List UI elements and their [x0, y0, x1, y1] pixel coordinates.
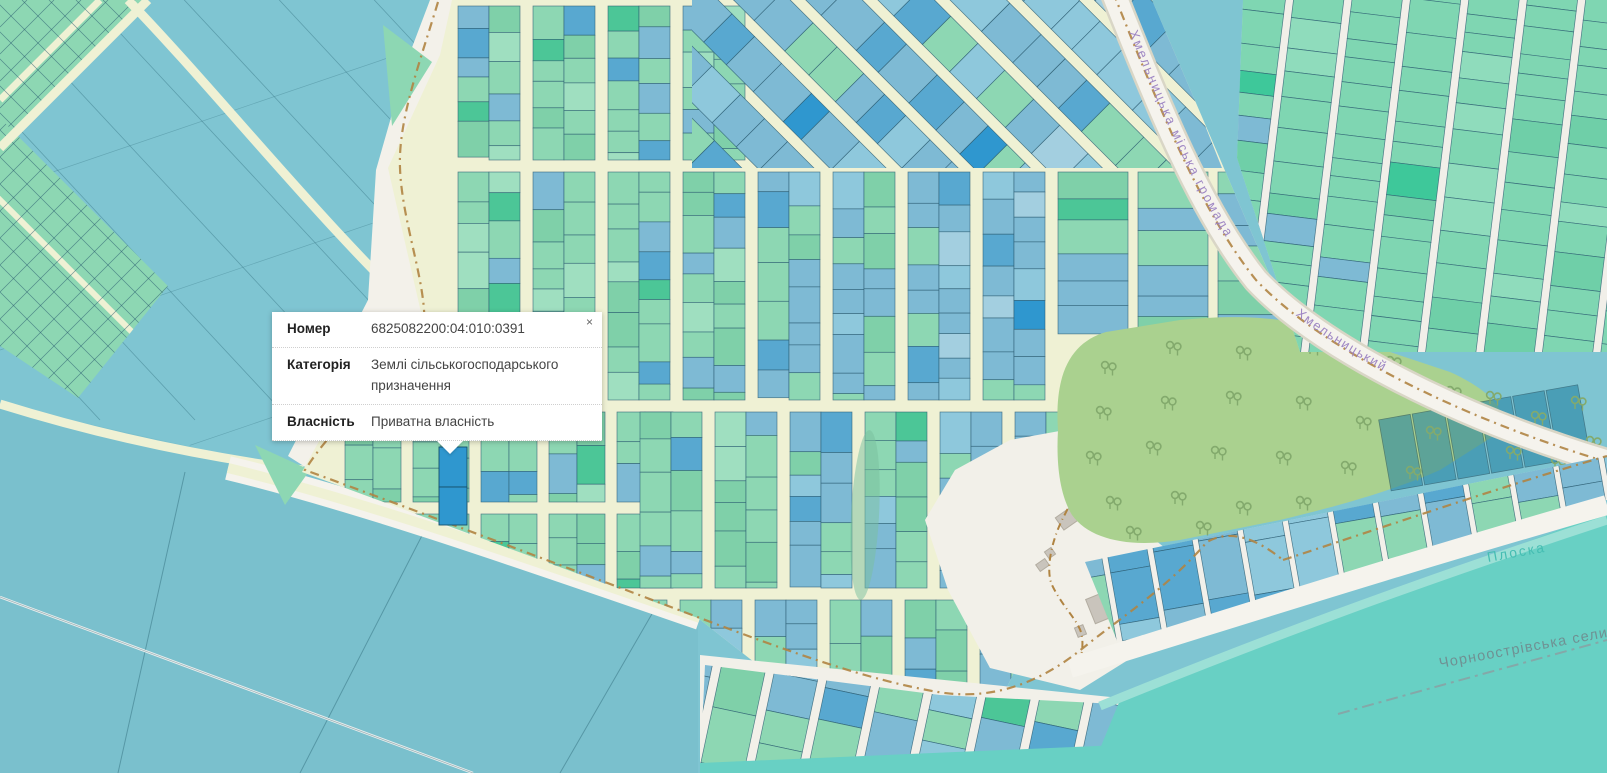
parcel[interactable]	[1138, 231, 1208, 266]
parcel[interactable]	[373, 448, 401, 489]
parcel[interactable]	[533, 172, 564, 210]
parcel[interactable]	[1505, 152, 1558, 188]
parcel[interactable]	[714, 328, 745, 365]
parcel[interactable]	[1551, 252, 1605, 292]
parcel[interactable]	[715, 502, 746, 531]
parcel[interactable]	[939, 358, 970, 378]
parcel[interactable]	[608, 153, 639, 160]
parcel[interactable]	[458, 58, 489, 77]
parcel[interactable]	[714, 217, 745, 248]
parcel[interactable]	[489, 146, 520, 160]
parcel[interactable]	[608, 58, 639, 81]
parcel[interactable]	[746, 510, 777, 542]
parcel[interactable]	[896, 462, 927, 497]
parcel[interactable]	[789, 323, 820, 345]
parcel[interactable]	[833, 314, 864, 335]
parcel[interactable]	[1437, 230, 1491, 269]
parcel[interactable]	[714, 281, 745, 304]
parcel[interactable]	[608, 172, 639, 204]
parcel[interactable]	[758, 301, 789, 340]
parcel[interactable]	[481, 472, 509, 503]
parcel[interactable]	[509, 495, 537, 503]
parcel[interactable]	[746, 477, 777, 510]
parcel[interactable]	[639, 384, 670, 400]
parcel[interactable]	[1014, 301, 1045, 330]
parcel[interactable]	[971, 412, 1002, 446]
parcel-info-popup: × Номер 6825082200:04:010:0391 Категорія…	[272, 312, 602, 441]
parcel[interactable]	[608, 347, 639, 372]
parcel[interactable]	[509, 471, 537, 494]
parcel[interactable]	[639, 141, 670, 160]
parcel[interactable]	[639, 324, 670, 362]
parcel[interactable]	[608, 262, 639, 282]
popup-pointer	[437, 441, 463, 454]
parcel[interactable]	[1138, 266, 1208, 296]
parcel[interactable]	[564, 110, 595, 134]
parcel[interactable]	[789, 260, 820, 287]
parcel[interactable]	[564, 172, 595, 202]
parcel[interactable]	[640, 439, 671, 472]
parcel[interactable]	[683, 215, 714, 253]
close-icon[interactable]: ×	[586, 316, 593, 328]
parcel[interactable]	[1395, 90, 1448, 127]
parcel[interactable]	[639, 192, 670, 222]
cadastral-map[interactable]: Хмельницька міська громада Хмельницький …	[0, 0, 1607, 773]
parcel[interactable]	[458, 252, 489, 289]
parcel[interactable]	[640, 472, 671, 512]
parcel[interactable]	[533, 210, 564, 242]
parcel[interactable]	[896, 412, 927, 441]
parcel[interactable]	[683, 302, 714, 332]
parcel[interactable]	[413, 468, 441, 497]
parcel[interactable]	[577, 543, 605, 564]
parcel[interactable]	[1058, 281, 1128, 305]
parcel[interactable]	[640, 512, 671, 546]
parcel[interactable]	[639, 6, 670, 27]
parcel[interactable]	[714, 366, 745, 393]
parcel[interactable]	[830, 600, 861, 643]
parcel[interactable]	[1494, 240, 1548, 279]
parcel[interactable]	[983, 266, 1014, 296]
parcel[interactable]	[746, 582, 777, 588]
parcel[interactable]	[939, 334, 970, 359]
parcel[interactable]	[821, 412, 852, 453]
parcel[interactable]	[608, 131, 639, 152]
parcel[interactable]	[790, 496, 821, 521]
parcel[interactable]	[821, 453, 852, 484]
parcel[interactable]	[481, 514, 509, 542]
field-label: Категорія	[287, 355, 371, 396]
parcel[interactable]	[864, 172, 895, 207]
parcel[interactable]	[577, 484, 605, 502]
parcel[interactable]	[714, 304, 745, 328]
parcel[interactable]	[564, 58, 595, 83]
selected-parcel[interactable]	[439, 447, 467, 525]
parcel[interactable]	[640, 546, 671, 576]
parcel[interactable]	[905, 600, 936, 638]
parcel[interactable]	[758, 263, 789, 302]
parcel-ownership: Приватна власність	[371, 412, 588, 432]
parcel[interactable]	[489, 193, 520, 221]
parcel[interactable]	[458, 121, 489, 157]
parcel[interactable]	[833, 172, 864, 209]
parcel[interactable]	[833, 209, 864, 238]
parcel[interactable]	[864, 289, 895, 317]
parcel[interactable]	[458, 223, 489, 252]
parcel[interactable]	[1278, 96, 1331, 133]
parcel[interactable]	[608, 6, 639, 31]
parcel[interactable]	[908, 383, 939, 400]
parcel[interactable]	[489, 32, 520, 61]
parcel[interactable]	[1509, 119, 1563, 158]
field-label: Власність	[287, 412, 371, 432]
parcel[interactable]	[789, 235, 820, 260]
parcel[interactable]	[821, 523, 852, 552]
parcel[interactable]	[833, 373, 864, 393]
parcel[interactable]	[821, 575, 852, 589]
parcel[interactable]	[533, 108, 564, 128]
parcel[interactable]	[577, 446, 605, 485]
parcel[interactable]	[639, 27, 670, 59]
parcel[interactable]	[1014, 242, 1045, 269]
parcel[interactable]	[908, 290, 939, 313]
parcel[interactable]	[509, 514, 537, 544]
parcel[interactable]	[489, 121, 520, 146]
parcel[interactable]	[683, 388, 714, 400]
parcel[interactable]	[905, 638, 936, 669]
parcel[interactable]	[1406, 0, 1460, 38]
parcel[interactable]	[833, 264, 864, 290]
parcel[interactable]	[864, 234, 895, 269]
parcel[interactable]	[746, 412, 777, 435]
parcel[interactable]	[939, 172, 970, 205]
parcel[interactable]	[983, 199, 1014, 234]
parcel[interactable]	[458, 102, 489, 122]
parcel[interactable]	[608, 204, 639, 229]
parcel[interactable]	[1058, 220, 1128, 254]
parcel[interactable]	[639, 362, 670, 384]
parcel[interactable]	[833, 290, 864, 314]
parcel[interactable]	[639, 300, 670, 324]
parcel[interactable]	[489, 172, 520, 193]
parcel[interactable]	[577, 514, 605, 543]
parcel[interactable]	[1377, 236, 1431, 274]
parcel[interactable]	[489, 258, 520, 283]
parcel[interactable]	[758, 228, 789, 263]
parcel[interactable]	[683, 192, 714, 215]
parcel[interactable]	[458, 29, 489, 58]
parcel[interactable]	[639, 84, 670, 114]
parcel[interactable]	[789, 287, 820, 323]
parcel[interactable]	[983, 234, 1014, 266]
parcel[interactable]	[683, 253, 714, 274]
parcel[interactable]	[608, 110, 639, 131]
parcel[interactable]	[608, 372, 639, 400]
parcel[interactable]	[939, 232, 970, 266]
parcel[interactable]	[789, 206, 820, 235]
parcel[interactable]	[939, 289, 970, 313]
parcel[interactable]	[864, 386, 895, 400]
parcel[interactable]	[549, 514, 577, 538]
parcel[interactable]	[564, 235, 595, 263]
parcel[interactable]	[790, 412, 821, 452]
parcel-category: Землі сільськогосподарського призначення	[371, 355, 588, 396]
parcel[interactable]	[758, 172, 789, 192]
parcel[interactable]	[458, 6, 489, 29]
parcel[interactable]	[608, 229, 639, 262]
parcel[interactable]	[640, 412, 671, 439]
parcel[interactable]	[711, 600, 742, 628]
parcel[interactable]	[671, 412, 702, 438]
parcel[interactable]	[1270, 161, 1324, 199]
parcel[interactable]	[939, 313, 970, 334]
parcel[interactable]	[1320, 224, 1374, 263]
parcel[interactable]	[671, 552, 702, 574]
parcel[interactable]	[790, 545, 821, 587]
parcel[interactable]	[864, 207, 895, 234]
parcel[interactable]	[345, 445, 373, 480]
parcel[interactable]	[1014, 217, 1045, 242]
parcel[interactable]	[671, 471, 702, 511]
parcel[interactable]	[639, 59, 670, 84]
parcel[interactable]	[715, 531, 746, 566]
parcel[interactable]	[896, 497, 927, 532]
parcel[interactable]	[714, 172, 745, 194]
parcel[interactable]	[790, 452, 821, 476]
parcel[interactable]	[864, 316, 895, 352]
parcel[interactable]	[1058, 172, 1128, 199]
parcel[interactable]	[533, 242, 564, 269]
parcel[interactable]	[458, 289, 489, 313]
parcel[interactable]	[755, 600, 786, 637]
parcel[interactable]	[908, 346, 939, 382]
parcel[interactable]	[1058, 254, 1128, 281]
parcel[interactable]	[533, 289, 564, 311]
parcel[interactable]	[683, 357, 714, 388]
parcel[interactable]	[908, 172, 939, 203]
parcel[interactable]	[908, 228, 939, 265]
parcel[interactable]	[833, 394, 864, 401]
parcel[interactable]	[1014, 269, 1045, 301]
parcel[interactable]	[549, 454, 577, 494]
parcel[interactable]	[533, 81, 564, 108]
parcel[interactable]	[983, 172, 1014, 199]
parcel[interactable]	[746, 435, 777, 477]
parcel[interactable]	[608, 81, 639, 110]
parcel[interactable]	[1058, 305, 1128, 334]
parcel[interactable]	[683, 274, 714, 303]
parcel[interactable]	[489, 62, 520, 94]
parcel[interactable]	[683, 332, 714, 357]
parcel[interactable]	[639, 222, 670, 252]
parcel[interactable]	[564, 6, 595, 35]
parcel[interactable]	[533, 128, 564, 160]
parcel[interactable]	[983, 352, 1014, 380]
parcel[interactable]	[608, 313, 639, 348]
parcel[interactable]	[1288, 17, 1341, 54]
parcel[interactable]	[639, 280, 670, 300]
parcel[interactable]	[786, 624, 817, 649]
parcel[interactable]	[1498, 209, 1551, 246]
parcel[interactable]	[549, 494, 577, 503]
parcel[interactable]	[489, 6, 520, 32]
parcel[interactable]	[864, 352, 895, 385]
parcel[interactable]	[789, 345, 820, 373]
parcel[interactable]	[715, 566, 746, 588]
parcel[interactable]	[639, 252, 670, 280]
parcel[interactable]	[489, 221, 520, 259]
parcel[interactable]	[564, 134, 595, 160]
parcel[interactable]	[671, 511, 702, 552]
parcel[interactable]	[413, 497, 441, 502]
parcel[interactable]	[896, 532, 927, 562]
parcel[interactable]	[608, 31, 639, 58]
popup-row-category: Категорія Землі сільськогосподарського п…	[272, 348, 602, 405]
parcel[interactable]	[564, 263, 595, 297]
parcel[interactable]	[1014, 357, 1045, 385]
parcel[interactable]	[1014, 192, 1045, 217]
parcel[interactable]	[640, 576, 671, 588]
parcel[interactable]	[1015, 412, 1046, 436]
parcel[interactable]	[790, 521, 821, 545]
parcel[interactable]	[1014, 172, 1045, 192]
parcel[interactable]	[549, 538, 577, 565]
parcel[interactable]	[533, 39, 564, 61]
parcel[interactable]	[714, 392, 745, 400]
parcel[interactable]	[940, 412, 971, 453]
parcel[interactable]	[564, 202, 595, 235]
popup-row-ownership: Власність Приватна власність	[272, 405, 602, 441]
parcel[interactable]	[1441, 197, 1495, 236]
parcel[interactable]	[758, 340, 789, 370]
parcel[interactable]	[896, 441, 927, 462]
parcel[interactable]	[639, 172, 670, 192]
parcel[interactable]	[821, 552, 852, 575]
parcel[interactable]	[908, 313, 939, 346]
parcel[interactable]	[983, 318, 1014, 352]
parcel[interactable]	[509, 437, 537, 471]
parcel[interactable]	[458, 172, 489, 202]
parcel[interactable]	[683, 172, 714, 192]
map-canvas[interactable]: Хмельницька міська громада Хмельницький …	[0, 0, 1607, 773]
parcel[interactable]	[864, 269, 895, 289]
parcel[interactable]	[715, 481, 746, 503]
parcel[interactable]	[746, 542, 777, 582]
parcel[interactable]	[1429, 297, 1482, 334]
parcel[interactable]	[671, 438, 702, 471]
parcel[interactable]	[939, 205, 970, 232]
parcel[interactable]	[458, 202, 489, 224]
parcel[interactable]	[1402, 32, 1456, 72]
parcel-number: 6825082200:04:010:0391	[371, 319, 588, 339]
parcel[interactable]	[1014, 329, 1045, 356]
parcel[interactable]	[758, 370, 789, 398]
parcel[interactable]	[790, 475, 821, 496]
parcel[interactable]	[1432, 263, 1486, 303]
parcel[interactable]	[861, 600, 892, 636]
parcel[interactable]	[1445, 163, 1499, 203]
parcel[interactable]	[714, 248, 745, 281]
parcel[interactable]	[789, 373, 820, 400]
parcel[interactable]	[1386, 162, 1440, 201]
parcel[interactable]	[833, 238, 864, 264]
parcel[interactable]	[786, 600, 817, 624]
parcel[interactable]	[821, 483, 852, 523]
parcel[interactable]	[1449, 129, 1503, 169]
parcel[interactable]	[715, 412, 746, 447]
parcel[interactable]	[1138, 296, 1208, 316]
parcel[interactable]	[533, 6, 564, 39]
parcel[interactable]	[1058, 199, 1128, 220]
parcel[interactable]	[939, 378, 970, 400]
parcel[interactable]	[789, 172, 820, 206]
popup-row-number: Номер 6825082200:04:010:0391	[272, 312, 602, 348]
field-label: Номер	[287, 319, 371, 339]
parcel[interactable]	[564, 83, 595, 111]
parcel[interactable]	[608, 282, 639, 313]
parcel[interactable]	[983, 296, 1014, 318]
parcel[interactable]	[936, 630, 967, 671]
parcel[interactable]	[533, 61, 564, 81]
parcel[interactable]	[489, 94, 520, 121]
parcel[interactable]	[671, 574, 702, 588]
parcel[interactable]	[908, 265, 939, 290]
parcel[interactable]	[896, 562, 927, 588]
parcel[interactable]	[939, 266, 970, 289]
parcel[interactable]	[758, 192, 789, 228]
parcel[interactable]	[833, 335, 864, 374]
parcel[interactable]	[715, 447, 746, 481]
parcel[interactable]	[639, 113, 670, 140]
parcel[interactable]	[458, 77, 489, 102]
parcel[interactable]	[1274, 127, 1328, 167]
parcel[interactable]	[533, 269, 564, 289]
parcel[interactable]	[564, 35, 595, 58]
parcel[interactable]	[983, 380, 1014, 400]
parcel[interactable]	[1014, 385, 1045, 400]
parcel[interactable]	[908, 203, 939, 227]
parcel[interactable]	[714, 194, 745, 218]
